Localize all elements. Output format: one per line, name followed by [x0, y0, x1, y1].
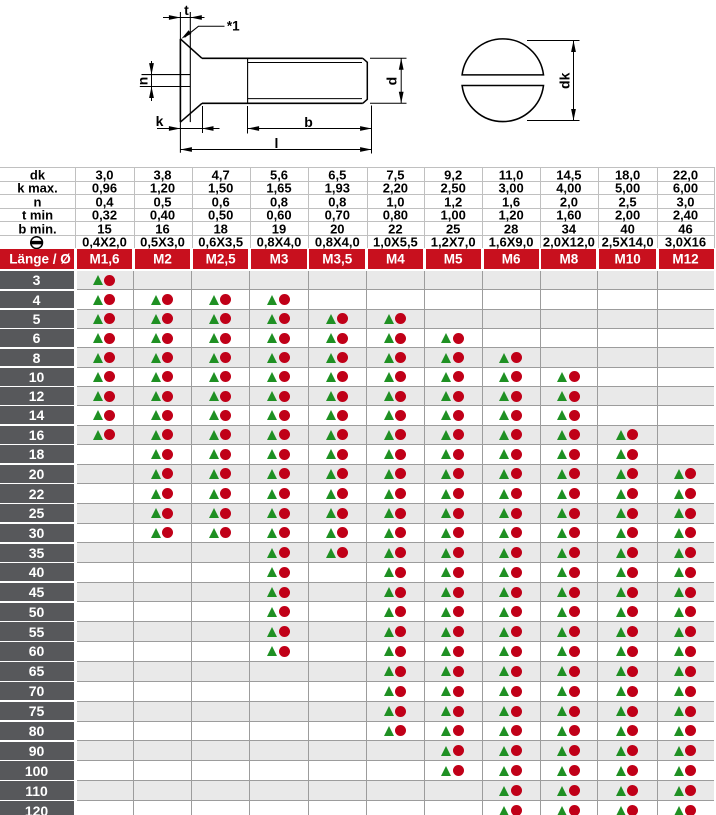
svg-text:n: n [135, 77, 151, 86]
svg-text:l: l [275, 135, 279, 151]
svg-text:dk: dk [557, 72, 573, 89]
svg-text:k: k [156, 113, 164, 129]
svg-text:t: t [184, 2, 189, 18]
svg-text:b: b [304, 114, 313, 130]
svg-text:d: d [384, 77, 400, 86]
svg-text:*1: *1 [227, 18, 240, 33]
